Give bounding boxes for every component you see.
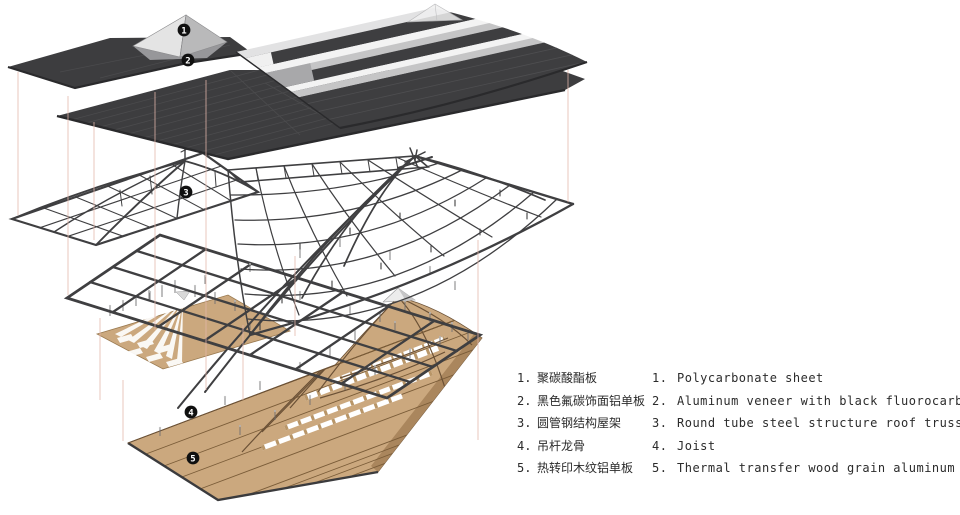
legend-item-zh-1: 1. 聚碳酸酯板 (517, 367, 645, 390)
marker-3: 3 (180, 186, 193, 199)
legend-num: 2. (517, 390, 537, 413)
legend-num: 3. (517, 412, 537, 435)
legend-label: Aluminum veneer with black fluorocarbon … (677, 390, 960, 413)
legend-num: 1. (652, 367, 677, 390)
legend-label: 热转印木纹铝单板 (537, 457, 633, 480)
svg-text:4: 4 (188, 408, 194, 418)
legend-num: 4. (517, 435, 537, 458)
legend-item-zh-3: 3. 圆管钢结构屋架 (517, 412, 645, 435)
legend-item-zh-4: 4. 吊杆龙骨 (517, 435, 645, 458)
legend-item-zh-2: 2. 黑色氟碳饰面铝单板 (517, 390, 645, 413)
legend-label: Joist (677, 435, 716, 458)
legend-num: 3. (652, 412, 677, 435)
legend-label: 聚碳酸酯板 (537, 367, 597, 390)
steel-truss-small (12, 148, 258, 245)
legend-label: Round tube steel structure roof truss (677, 412, 960, 435)
legend-label: 黑色氟碳饰面铝单板 (537, 390, 645, 413)
legend-num: 1. (517, 367, 537, 390)
svg-text:1: 1 (181, 26, 186, 36)
legend-label: Polycarbonate sheet (677, 367, 824, 390)
marker-2: 2 (182, 54, 195, 67)
svg-text:5: 5 (190, 454, 195, 464)
legend-item-en-3: 3. Round tube steel structure roof truss (652, 412, 960, 435)
legend-label: 圆管钢结构屋架 (537, 412, 621, 435)
exploded-roof-diagram: 1 2 3 4 5 1. 聚碳酸酯板 2. 黑色氟碳饰面铝单板 3. 圆管钢结构… (0, 0, 960, 515)
legend-item-en-2: 2. Aluminum veneer with black fluorocarb… (652, 390, 960, 413)
legend-chinese: 1. 聚碳酸酯板 2. 黑色氟碳饰面铝单板 3. 圆管钢结构屋架 4. 吊杆龙骨… (517, 367, 645, 480)
svg-text:2: 2 (185, 56, 190, 66)
legend-num: 5. (517, 457, 537, 480)
legend-item-en-4: 4. Joist (652, 435, 960, 458)
legend-num: 5. (652, 457, 677, 480)
legend-num: 4. (652, 435, 677, 458)
marker-5: 5 (187, 452, 200, 465)
legend-item-en-1: 1. Polycarbonate sheet (652, 367, 960, 390)
legend-num: 2. (652, 390, 677, 413)
legend-label: Thermal transfer wood grain aluminum ven… (677, 457, 960, 480)
marker-4: 4 (185, 406, 198, 419)
legend-item-zh-5: 5. 热转印木纹铝单板 (517, 457, 645, 480)
legend-english: 1. Polycarbonate sheet 2. Aluminum venee… (652, 367, 960, 480)
polycarbonate-pyramid-small (133, 15, 227, 60)
svg-text:3: 3 (183, 188, 188, 198)
marker-1: 1 (178, 24, 191, 37)
legend-item-en-5: 5. Thermal transfer wood grain aluminum … (652, 457, 960, 480)
legend-label: 吊杆龙骨 (537, 435, 585, 458)
